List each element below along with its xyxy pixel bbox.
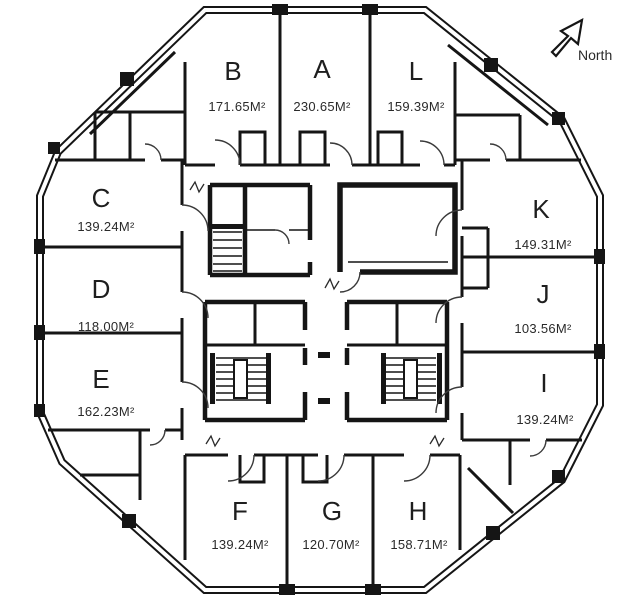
unit-f-area: 139.24M² <box>211 537 269 552</box>
building-outline <box>40 10 600 590</box>
unit-l-label: L <box>409 56 423 86</box>
north-indicator: North <box>552 20 612 63</box>
floor-plan-drawing: B 171.65M² A 230.65M² L 159.39M² C 139.2… <box>0 0 621 600</box>
unit-i-label: I <box>540 368 547 398</box>
staircase-left <box>210 353 271 404</box>
unit-g-label: G <box>322 496 342 526</box>
unit-i-area: 139.24M² <box>516 412 574 427</box>
unit-partition-walls <box>40 10 600 590</box>
unit-c-label: C <box>92 183 111 213</box>
unit-a-label: A <box>313 54 331 84</box>
lower-right-core <box>318 302 447 420</box>
unit-j-label: J <box>537 279 550 309</box>
unit-f-label: F <box>232 496 248 526</box>
floor-plan: B 171.65M² A 230.65M² L 159.39M² C 139.2… <box>0 0 621 600</box>
unit-k-area: 149.31M² <box>514 237 572 252</box>
unit-a-area: 230.65M² <box>293 99 351 114</box>
staircase-upper <box>212 224 244 271</box>
unit-d-label: D <box>92 274 111 304</box>
upper-core <box>210 185 310 275</box>
unit-d-area: 118.00M² <box>78 319 135 334</box>
lower-left-core <box>205 302 305 420</box>
unit-c-area: 139.24M² <box>77 219 135 234</box>
unit-e-area: 162.23M² <box>77 404 135 419</box>
unit-h-label: H <box>409 496 428 526</box>
unit-e-label: E <box>92 364 109 394</box>
unit-g-area: 120.70M² <box>302 537 360 552</box>
unit-l-area: 159.39M² <box>387 99 445 114</box>
unit-b-label: B <box>224 56 241 86</box>
unit-h-area: 158.71M² <box>390 537 448 552</box>
unit-b-area: 171.65M² <box>208 99 266 114</box>
unit-k-label: K <box>532 194 550 224</box>
staircase-right <box>381 353 442 404</box>
unit-j-area: 103.56M² <box>514 321 572 336</box>
north-label: North <box>578 47 612 63</box>
